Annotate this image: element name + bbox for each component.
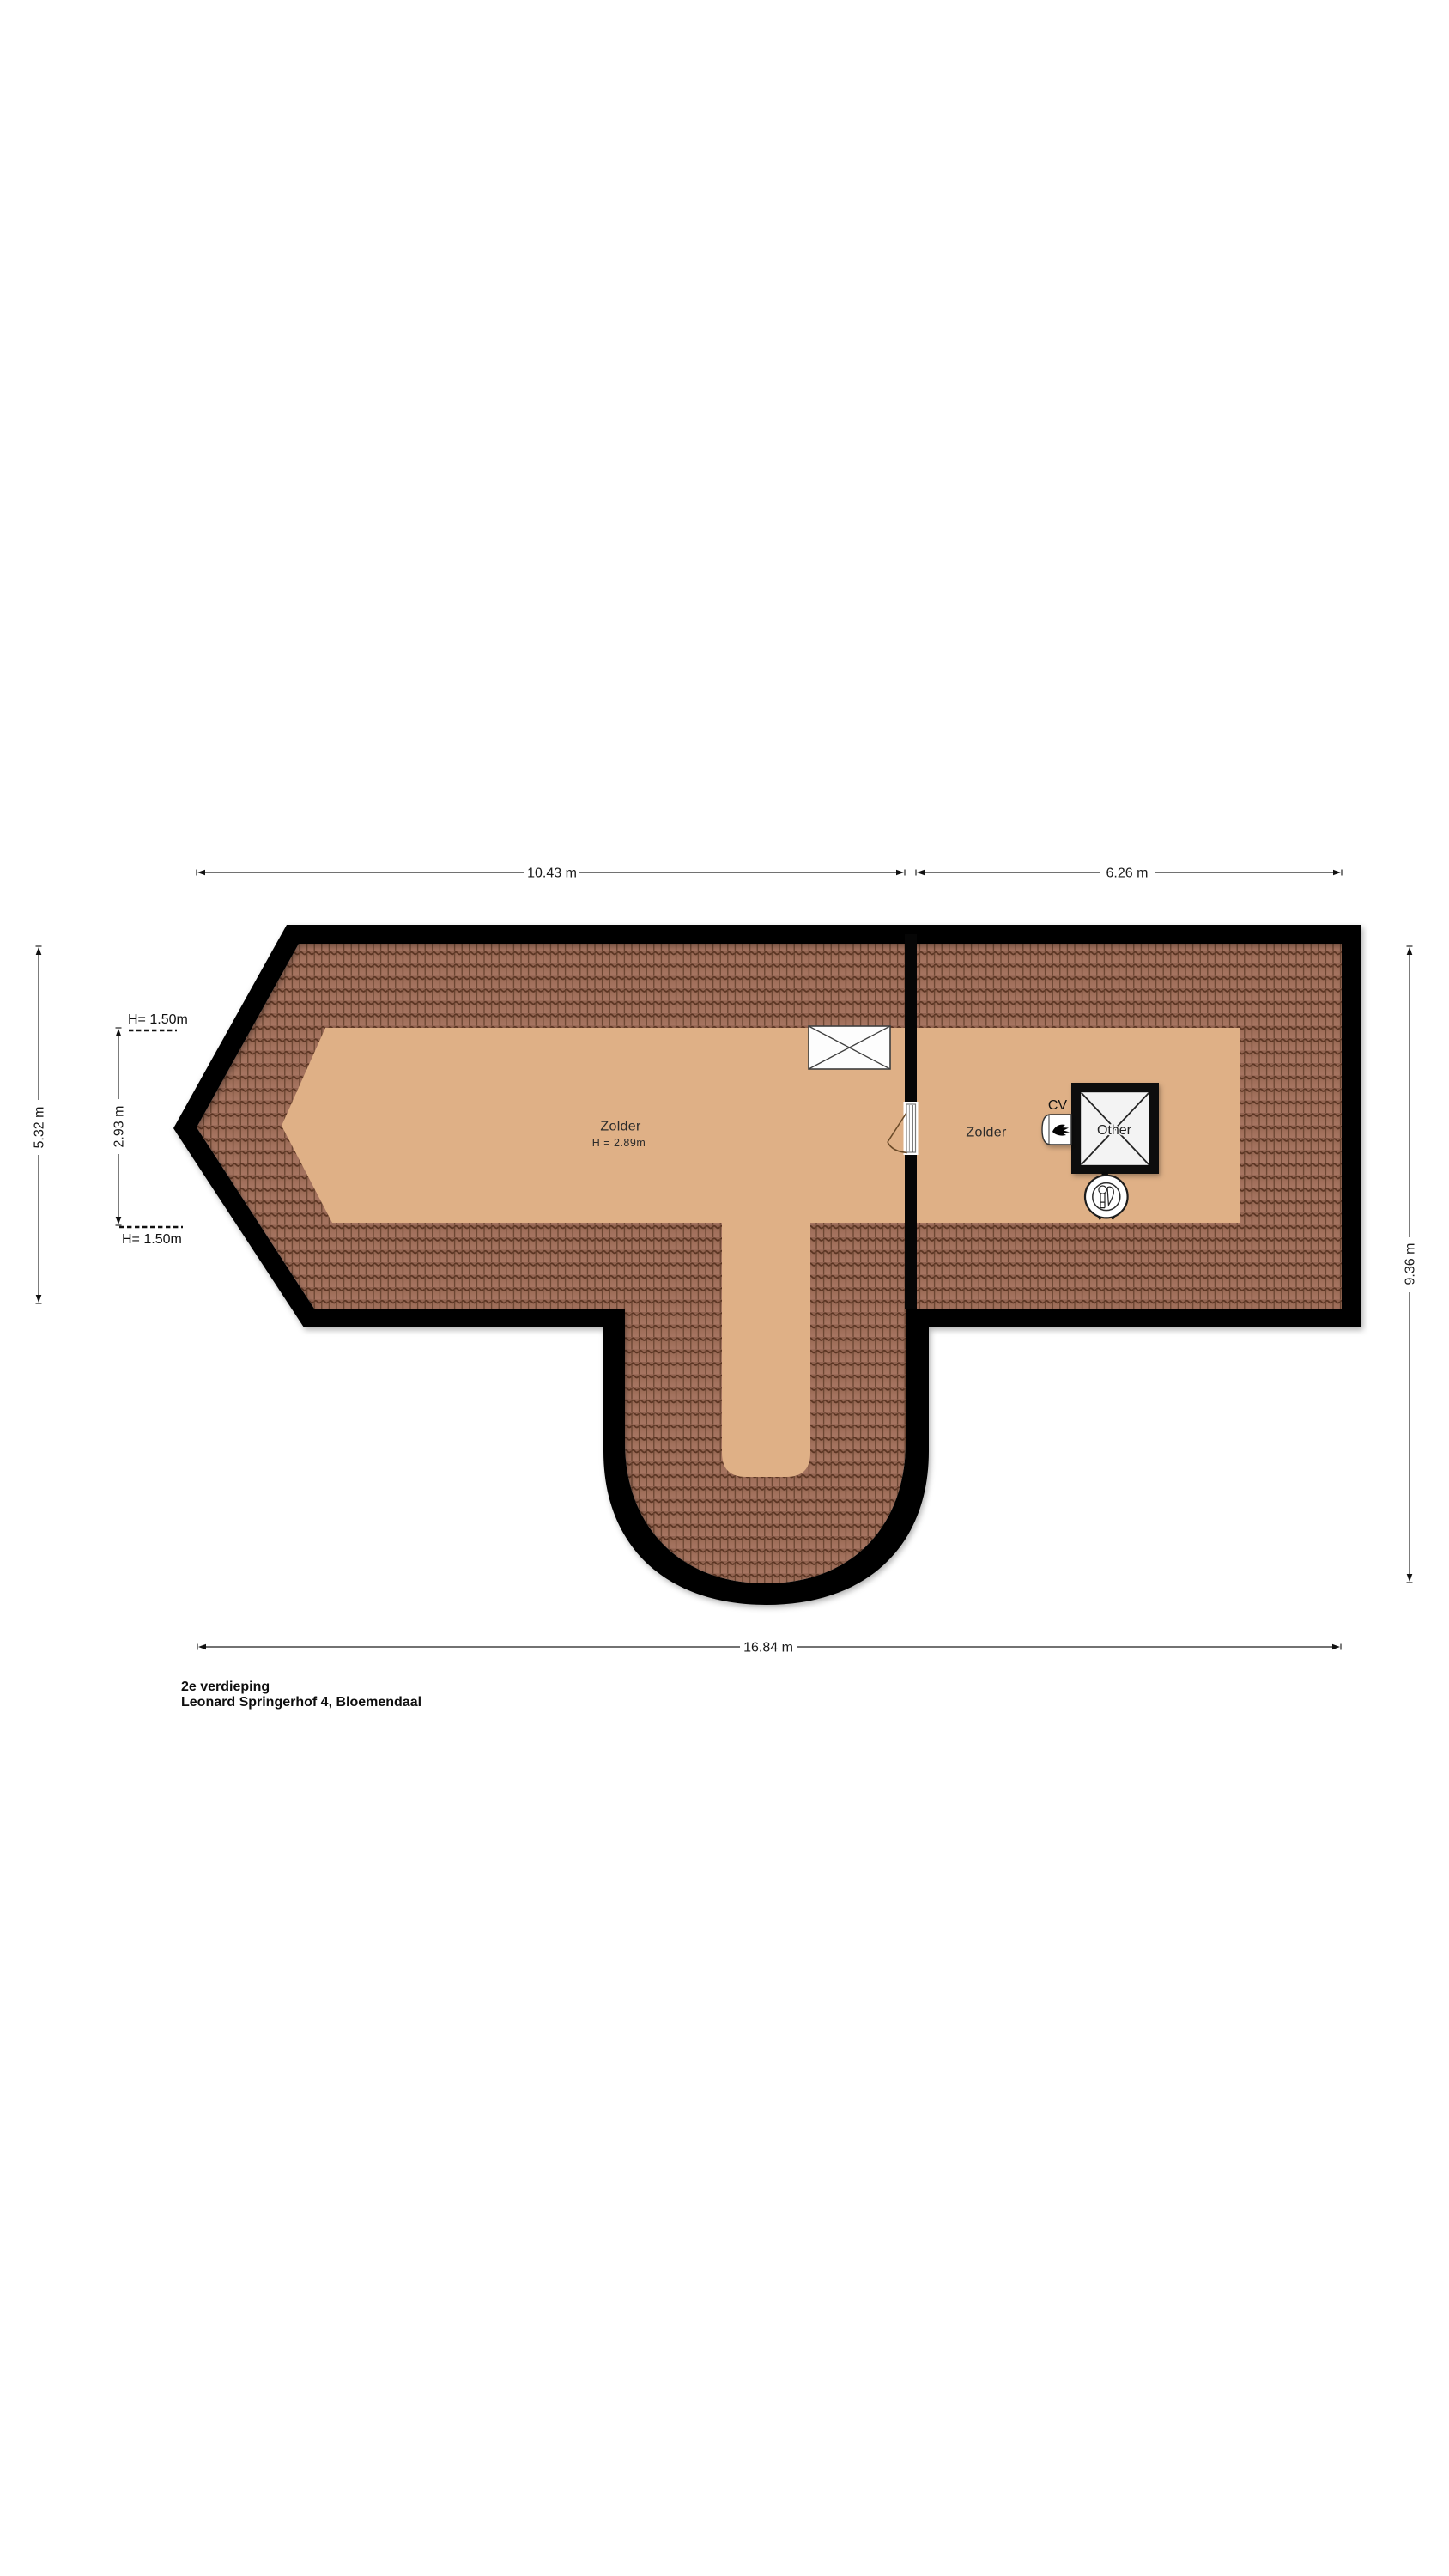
svg-text:Other: Other bbox=[1097, 1123, 1132, 1138]
svg-text:Zolder: Zolder bbox=[600, 1120, 641, 1134]
svg-text:Leonard Springerhof 4, Bloemen: Leonard Springerhof 4, Bloemendaal bbox=[181, 1695, 421, 1710]
svg-text:H = 2.89m: H = 2.89m bbox=[592, 1137, 646, 1149]
svg-text:H= 1.50m: H= 1.50m bbox=[122, 1232, 182, 1247]
svg-text:9.36 m: 9.36 m bbox=[1404, 1243, 1418, 1285]
svg-text:10.43 m: 10.43 m bbox=[527, 866, 577, 881]
svg-text:H= 1.50m: H= 1.50m bbox=[128, 1012, 188, 1027]
svg-text:2e verdieping: 2e verdieping bbox=[181, 1680, 270, 1694]
svg-text:16.84 m: 16.84 m bbox=[743, 1641, 793, 1656]
svg-text:6.26 m: 6.26 m bbox=[1106, 866, 1149, 881]
svg-text:CV: CV bbox=[1048, 1098, 1068, 1113]
svg-text:2.93 m: 2.93 m bbox=[112, 1106, 127, 1148]
svg-text:Zolder: Zolder bbox=[966, 1126, 1007, 1140]
svg-text:5.32 m: 5.32 m bbox=[33, 1107, 47, 1149]
